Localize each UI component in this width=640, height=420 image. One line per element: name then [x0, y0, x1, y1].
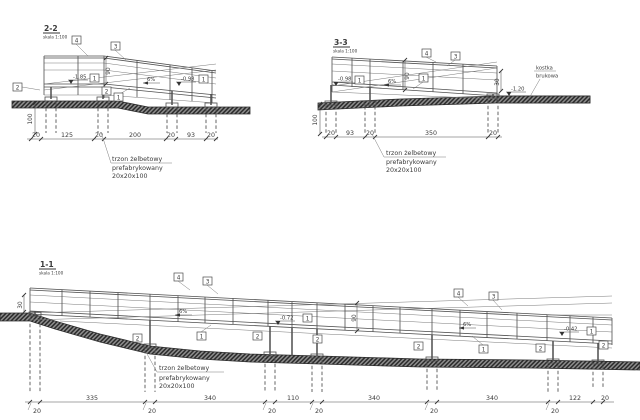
section-2-2: 2-2 skala 1:100 [12, 24, 250, 180]
svg-text:125: 125 [61, 132, 73, 139]
svg-text:6%: 6% [147, 77, 155, 83]
svg-text:100: 100 [28, 113, 34, 124]
svg-text:2: 2 [316, 337, 320, 343]
svg-text:1: 1 [422, 76, 426, 82]
section-1-1: 1-1 skala 1:100 [0, 260, 640, 415]
svg-text:prefabrykowany: prefabrykowany [159, 375, 210, 382]
svg-text:trzon żelbetowy: trzon żelbetowy [159, 365, 209, 372]
dimension-line: 20 93 20 350 20 [322, 130, 502, 139]
end-height-dim: 30 [495, 69, 503, 93]
drawing-sheet: 2-2 skala 1:100 [0, 0, 640, 420]
svg-text:20: 20 [551, 408, 559, 415]
svg-text:-0.98: -0.98 [181, 77, 194, 83]
svg-text:350: 350 [425, 130, 437, 137]
svg-text:340: 340 [486, 395, 498, 402]
svg-text:110: 110 [287, 395, 299, 402]
svg-text:20x20x100: 20x20x100 [159, 383, 195, 390]
callout-1: 1 [472, 336, 488, 353]
section-3-3: 3-3 skala 1:100 [313, 38, 590, 174]
svg-text:20: 20 [167, 132, 175, 139]
svg-text:4: 4 [75, 38, 79, 44]
callout-2: 2 [13, 83, 40, 91]
svg-text:-0.72: -0.72 [280, 316, 293, 322]
svg-text:122: 122 [569, 395, 581, 402]
svg-text:brukowa: brukowa [536, 74, 558, 80]
callout-4: 4 [422, 49, 436, 62]
svg-text:20: 20 [95, 132, 103, 139]
svg-text:kostka: kostka [536, 66, 553, 72]
svg-text:1: 1 [200, 334, 204, 340]
callout-1: 1 [587, 327, 596, 335]
ramp-structure [325, 57, 499, 133]
svg-text:2: 2 [136, 336, 140, 342]
svg-text:2: 2 [602, 343, 606, 349]
svg-text:1: 1 [93, 76, 97, 82]
svg-text:prefabrykowany: prefabrykowany [386, 159, 437, 166]
svg-text:20: 20 [327, 130, 335, 137]
callout-1: 1 [197, 325, 211, 340]
callout-4: 4 [72, 36, 88, 56]
svg-text:20x20x100: 20x20x100 [386, 167, 422, 174]
rail-height-dim: 90 [104, 56, 112, 86]
svg-text:3: 3 [206, 279, 210, 285]
section-title: 3-3 [334, 38, 348, 47]
section-scale: skala 1:100 [43, 35, 68, 40]
drawing-canvas: 2-2 skala 1:100 [0, 0, 640, 420]
svg-text:prefabrykowany: prefabrykowany [112, 165, 163, 172]
svg-text:trzon żelbetowy: trzon żelbetowy [112, 156, 162, 163]
svg-text:30: 30 [495, 78, 501, 86]
callout-2: 2 [133, 334, 142, 342]
section-scale: skala 1:100 [333, 49, 358, 54]
svg-text:100: 100 [313, 114, 319, 125]
svg-text:1: 1 [306, 316, 310, 322]
svg-text:1: 1 [590, 329, 594, 335]
svg-text:2: 2 [105, 89, 109, 95]
svg-text:20: 20 [268, 408, 276, 415]
svg-text:4: 4 [425, 51, 429, 57]
svg-text:90: 90 [106, 67, 112, 75]
svg-text:-1.20: -1.20 [511, 87, 524, 93]
svg-text:20: 20 [489, 130, 497, 137]
svg-text:6%: 6% [388, 79, 396, 85]
svg-text:2: 2 [16, 85, 20, 91]
end-height-dim: 30 [18, 293, 26, 314]
svg-text:30: 30 [18, 301, 24, 309]
note-shaft: trzon żelbetowy prefabrykowany 20x20x100 [372, 134, 446, 174]
svg-text:-0.98: -0.98 [338, 77, 351, 83]
elevation-mark: -1.20 [506, 87, 526, 96]
svg-text:3: 3 [454, 54, 458, 60]
slope-label: 6% [459, 322, 476, 330]
svg-text:93: 93 [187, 132, 195, 139]
svg-text:1: 1 [202, 77, 206, 83]
svg-text:2: 2 [539, 346, 543, 352]
svg-text:90: 90 [352, 314, 358, 322]
svg-text:20x20x100: 20x20x100 [112, 173, 148, 180]
svg-text:1: 1 [117, 95, 121, 101]
svg-text:1: 1 [358, 78, 362, 84]
svg-text:20: 20 [32, 132, 40, 139]
support-width-labels: 20 20 20 20 20 20 [28, 403, 559, 415]
svg-text:4: 4 [177, 275, 181, 281]
svg-text:6%: 6% [179, 309, 187, 315]
svg-text:93: 93 [346, 130, 354, 137]
section-title: 2-2 [44, 24, 58, 33]
svg-text:-1.85: -1.85 [73, 75, 86, 81]
svg-text:-0.42: -0.42 [564, 327, 577, 333]
callout-2: 2 [313, 335, 322, 343]
svg-text:3: 3 [492, 294, 496, 300]
svg-text:335: 335 [86, 395, 98, 402]
callout-3: 3 [203, 277, 218, 294]
svg-text:20: 20 [430, 408, 438, 415]
callout-1: 1 [355, 76, 364, 84]
callout-1: 1 [199, 75, 208, 83]
svg-text:1: 1 [482, 347, 486, 353]
svg-text:20: 20 [33, 408, 41, 415]
svg-text:340: 340 [368, 395, 380, 402]
svg-text:2: 2 [256, 334, 260, 340]
svg-text:20: 20 [207, 132, 215, 139]
elevation-mark: -0.42 [559, 327, 579, 336]
callout-1: 1 [90, 74, 99, 82]
callout-2: 2 [599, 341, 608, 349]
svg-text:340: 340 [204, 395, 216, 402]
callout-2: 2 [253, 332, 262, 340]
ramp-structure [44, 56, 217, 133]
callout-1: 1 [413, 74, 428, 89]
svg-text:6%: 6% [463, 322, 471, 328]
callout-3: 3 [489, 292, 502, 310]
callout-4: 4 [454, 289, 468, 306]
dimension-line: 20 125 20 200 20 93 20 [27, 132, 218, 141]
callout-2: 2 [102, 87, 111, 95]
elevation-mark: -0.98 [176, 77, 196, 86]
svg-text:2: 2 [417, 344, 421, 350]
paving-band [497, 96, 590, 103]
slope-label: 6% [384, 79, 401, 87]
svg-text:20: 20 [315, 408, 323, 415]
svg-text:90: 90 [405, 72, 411, 80]
callout-4: 4 [174, 273, 190, 290]
callout-1: 1 [303, 314, 312, 322]
section-scale: skala 1:100 [39, 271, 64, 276]
svg-text:200: 200 [129, 132, 141, 139]
callout-1: 1 [114, 88, 130, 101]
svg-text:4: 4 [457, 291, 461, 297]
note-paving: kostka brukowa [528, 66, 558, 101]
callout-2: 2 [414, 342, 423, 350]
svg-text:3: 3 [114, 44, 118, 50]
callout-2: 2 [536, 344, 545, 352]
svg-text:20: 20 [601, 395, 609, 402]
svg-text:20: 20 [148, 408, 156, 415]
section-title: 1-1 [40, 260, 54, 269]
dimension-line: 335 340 110 340 340 122 20 20 20 20 20 2… [25, 395, 614, 415]
svg-text:trzon żelbetowy: trzon żelbetowy [386, 150, 436, 157]
